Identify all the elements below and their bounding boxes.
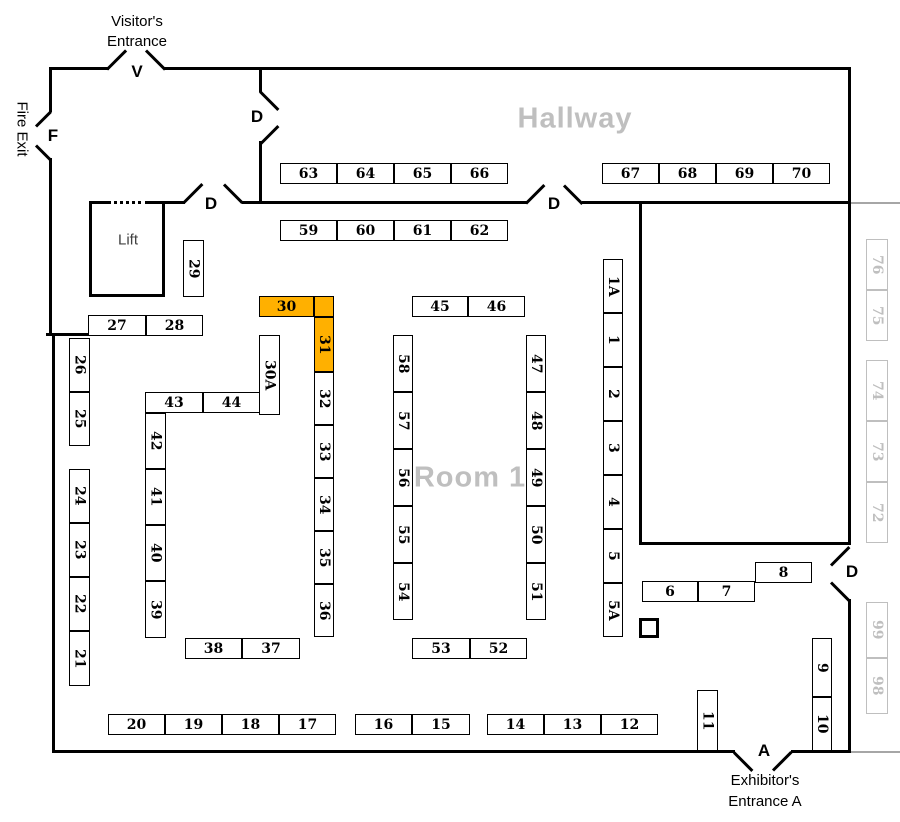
- booth-50[interactable]: 50: [526, 506, 546, 563]
- booth-8[interactable]: 8: [755, 562, 812, 583]
- lift-room: [89, 202, 165, 297]
- booth-38[interactable]: 38: [185, 638, 242, 659]
- booth-14[interactable]: 14: [487, 714, 544, 735]
- hallway-left-wall-upper: [259, 67, 262, 92]
- door-d2-flare-left: [183, 183, 204, 204]
- wall-top-left: [50, 67, 109, 70]
- booth-63[interactable]: 63: [280, 163, 337, 184]
- booth-76[interactable]: 76: [866, 239, 888, 290]
- booth-21[interactable]: 21: [69, 631, 90, 686]
- booth-72[interactable]: 72: [866, 482, 888, 543]
- booth-48[interactable]: 48: [526, 392, 546, 449]
- lift-top-wall-right: [149, 201, 165, 204]
- booth-73[interactable]: 73: [866, 421, 888, 482]
- booth-62[interactable]: 62: [451, 220, 508, 241]
- booth-17[interactable]: 17: [279, 714, 336, 735]
- fire-exit-flare-bottom: [35, 144, 52, 161]
- lift-top-wall-left: [89, 201, 107, 204]
- booth-69[interactable]: 69: [716, 163, 773, 184]
- room1-label: Room 1: [414, 462, 526, 495]
- booth-9[interactable]: 9: [812, 638, 832, 697]
- lift-door-wall-left: [164, 201, 185, 204]
- booth-11[interactable]: 11: [697, 690, 718, 751]
- booth-22[interactable]: 22: [69, 577, 90, 631]
- booth-1[interactable]: 1: [603, 313, 623, 367]
- door-d3-flare-right: [563, 184, 584, 205]
- booth-36[interactable]: 36: [314, 584, 334, 637]
- booth-64[interactable]: 64: [337, 163, 394, 184]
- booth-61[interactable]: 61: [394, 220, 451, 241]
- booth-35[interactable]: 35: [314, 531, 334, 584]
- boundary-line-bottom-right: [851, 751, 900, 753]
- boundary-line-top-right: [851, 202, 900, 204]
- booth-52[interactable]: 52: [470, 638, 527, 659]
- booth-15[interactable]: 15: [412, 714, 470, 735]
- booth-46[interactable]: 46: [468, 296, 525, 317]
- wall-right-lower: [848, 599, 851, 753]
- exhibitor-door-flare-left: [733, 751, 754, 772]
- door-label-v-0: V: [131, 62, 142, 82]
- exhibition-floor-plan: Lift Hallway Room 1 Visitor's Entrance F…: [0, 0, 900, 822]
- booth-59[interactable]: 59: [280, 220, 337, 241]
- booth-68[interactable]: 68: [659, 163, 716, 184]
- lift-label: Lift: [118, 232, 138, 249]
- booth-74[interactable]: 74: [866, 360, 888, 421]
- booth-58[interactable]: 58: [393, 335, 413, 392]
- booth-32[interactable]: 32: [314, 372, 334, 425]
- door-label-f-1: F: [48, 126, 58, 146]
- booth-31[interactable]: 31: [314, 317, 334, 372]
- booth-30A[interactable]: 30A: [259, 335, 280, 415]
- lift-top-wall-dotted: [107, 201, 149, 204]
- booth-16[interactable]: 16: [355, 714, 412, 735]
- booth-40[interactable]: 40: [145, 525, 166, 581]
- door-label-d-3: D: [205, 194, 217, 214]
- booth-99[interactable]: 99: [866, 602, 888, 658]
- booth-18[interactable]: 18: [222, 714, 279, 735]
- fire-exit-label: Fire Exit: [14, 101, 31, 156]
- door-d1-flare-bottom: [259, 125, 280, 146]
- booth-7[interactable]: 7: [698, 581, 755, 602]
- pillar: [639, 618, 659, 638]
- wall-left-mid: [49, 158, 52, 336]
- booth-25[interactable]: 25: [69, 392, 90, 446]
- booth-5A[interactable]: 5A: [603, 583, 623, 637]
- booth-29[interactable]: 29: [183, 240, 204, 297]
- door-label-d-4: D: [548, 194, 560, 214]
- booth-45[interactable]: 45: [412, 296, 468, 317]
- door-d3-flare-left: [525, 184, 546, 205]
- door-d2-flare-right: [223, 183, 244, 204]
- booth-27[interactable]: 27: [88, 315, 146, 336]
- booth-3[interactable]: 3: [603, 421, 623, 475]
- booth-5[interactable]: 5: [603, 529, 623, 583]
- booth-2[interactable]: 2: [603, 367, 623, 421]
- booth-1A[interactable]: 1A: [603, 259, 623, 313]
- booth-47[interactable]: 47: [526, 335, 546, 392]
- booth-4[interactable]: 4: [603, 475, 623, 529]
- booth-10[interactable]: 10: [812, 697, 832, 751]
- booth-12[interactable]: 12: [601, 714, 658, 735]
- booth-60[interactable]: 60: [337, 220, 394, 241]
- wall-bottom-left: [52, 750, 735, 753]
- lift-door-wall-right: [242, 201, 261, 204]
- booth-53[interactable]: 53: [412, 638, 470, 659]
- hallway-left-wall-lower: [259, 141, 262, 204]
- booth-30[interactable]: 30: [259, 296, 314, 317]
- booth-33[interactable]: 33: [314, 425, 334, 478]
- wall-right-upper: [848, 67, 851, 545]
- hallway-bottom-wall-right: [582, 201, 851, 204]
- door-label-a-6: A: [758, 741, 770, 761]
- wall-left-upper: [49, 67, 52, 112]
- booth-41[interactable]: 41: [145, 469, 166, 525]
- exhibitor-entrance-label-line1: Exhibitor's: [731, 771, 800, 791]
- booth-66[interactable]: 66: [451, 163, 508, 184]
- booth-30-corner[interactable]: [314, 296, 334, 317]
- booth-42[interactable]: 42: [145, 413, 166, 469]
- booth-26[interactable]: 26: [69, 338, 90, 392]
- booth-75[interactable]: 75: [866, 290, 888, 341]
- booth-67[interactable]: 67: [602, 163, 659, 184]
- booth-55[interactable]: 55: [393, 506, 413, 563]
- visitor-entrance-label-line2: Entrance: [107, 32, 167, 52]
- booth-54[interactable]: 54: [393, 563, 413, 620]
- booth-57[interactable]: 57: [393, 392, 413, 449]
- visitor-entrance-label-line1: Visitor's: [111, 12, 163, 32]
- booth-43[interactable]: 43: [145, 392, 203, 413]
- inner-room-left-wall: [639, 202, 642, 545]
- exhibitor-door-flare-right: [772, 751, 793, 772]
- fire-exit-flare-top: [35, 111, 52, 128]
- hallway-bottom-wall-left: [259, 201, 527, 204]
- booth-34[interactable]: 34: [314, 478, 334, 531]
- booth-24[interactable]: 24: [69, 469, 90, 523]
- wall-top-right: [164, 67, 851, 70]
- booth-23[interactable]: 23: [69, 523, 90, 577]
- door-label-d-2: D: [251, 107, 263, 127]
- booth-51[interactable]: 51: [526, 563, 546, 620]
- inner-room-bottom-wall: [639, 542, 849, 545]
- booth-98[interactable]: 98: [866, 658, 888, 714]
- booth-44[interactable]: 44: [203, 392, 260, 413]
- door-label-d-5: D: [846, 562, 858, 582]
- booth-20[interactable]: 20: [108, 714, 165, 735]
- hallway-label: Hallway: [518, 103, 633, 136]
- visitor-door-flare-left: [106, 49, 127, 70]
- door-d4-flare-bottom: [830, 581, 851, 602]
- booth-28[interactable]: 28: [146, 315, 203, 336]
- booth-6[interactable]: 6: [642, 581, 698, 602]
- booth-13[interactable]: 13: [544, 714, 601, 735]
- booth-39[interactable]: 39: [145, 581, 166, 638]
- booth-56[interactable]: 56: [393, 449, 413, 506]
- visitor-door-flare-right: [145, 49, 166, 70]
- exhibitor-entrance-label-line2: Entrance A: [728, 792, 801, 812]
- wall-left-lower: [52, 335, 55, 753]
- booth-19[interactable]: 19: [165, 714, 222, 735]
- booth-49[interactable]: 49: [526, 449, 546, 506]
- booth-70[interactable]: 70: [773, 163, 830, 184]
- booth-65[interactable]: 65: [394, 163, 451, 184]
- booth-37[interactable]: 37: [242, 638, 300, 659]
